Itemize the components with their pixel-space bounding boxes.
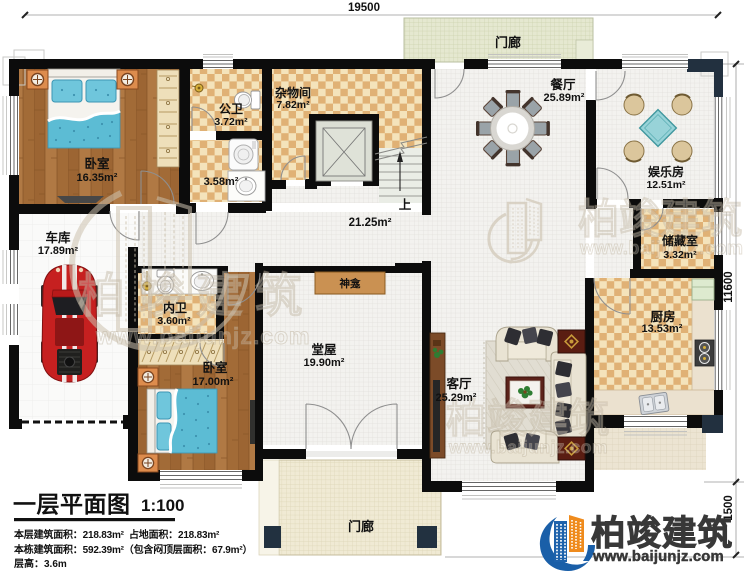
svg-text:本栋建筑面积：592.39m²（包含闷顶层面积：67.9m²: 本栋建筑面积：592.39m²（包含闷顶层面积：67.9m²） xyxy=(14,543,252,556)
svg-text:16.35m²: 16.35m² xyxy=(77,172,118,184)
svg-text:上: 上 xyxy=(399,197,412,212)
svg-text:13.53m²: 13.53m² xyxy=(642,323,683,335)
svg-text:19500: 19500 xyxy=(348,2,380,14)
svg-text:21.25m²: 21.25m² xyxy=(349,217,392,229)
svg-text:柏竣建筑: 柏竣建筑 xyxy=(578,196,742,242)
svg-text:客厅: 客厅 xyxy=(445,376,472,391)
svg-text:门廊: 门廊 xyxy=(495,35,521,50)
svg-text:17.89m²: 17.89m² xyxy=(38,245,79,257)
svg-text:www.baijunjz.com: www.baijunjz.com xyxy=(448,437,608,457)
svg-text:柏竣建筑: 柏竣建筑 xyxy=(78,269,314,322)
svg-text:3.32m²: 3.32m² xyxy=(663,249,697,261)
svg-text:7.82m²: 7.82m² xyxy=(276,99,310,111)
svg-text:内卫: 内卫 xyxy=(163,300,187,315)
svg-text:www.baijunjz.com: www.baijunjz.com xyxy=(592,549,724,565)
svg-text:娱乐房: 娱乐房 xyxy=(648,164,684,179)
svg-text:层高：3.6m: 层高：3.6m xyxy=(14,557,67,570)
svg-text:25.29m²: 25.29m² xyxy=(436,392,477,404)
svg-text:餐厅: 餐厅 xyxy=(549,77,576,92)
svg-text:卧室: 卧室 xyxy=(202,360,228,375)
svg-text:17.00m²: 17.00m² xyxy=(193,376,234,388)
svg-text:3.60m²: 3.60m² xyxy=(157,315,191,327)
svg-text:储藏室: 储藏室 xyxy=(662,233,698,248)
svg-text:车库: 车库 xyxy=(45,230,71,245)
svg-text:3.58m²: 3.58m² xyxy=(204,176,239,188)
svg-text:厨房: 厨房 xyxy=(650,309,675,324)
svg-text:www.baijunjz.com: www.baijunjz.com xyxy=(95,323,311,349)
svg-text:一层平面图: 一层平面图 xyxy=(13,491,131,517)
svg-text:11600: 11600 xyxy=(723,271,735,302)
svg-text:19.90m²: 19.90m² xyxy=(304,357,345,369)
svg-text:本层建筑面积：218.83m² 占地面积：218.83m²: 本层建筑面积：218.83m² 占地面积：218.83m² xyxy=(14,528,220,541)
svg-text:柏竣建筑: 柏竣建筑 xyxy=(591,514,733,553)
svg-text:神龛: 神龛 xyxy=(340,277,361,290)
svg-text:堂屋: 堂屋 xyxy=(311,342,337,357)
svg-text:门廊: 门廊 xyxy=(348,519,374,534)
svg-text:1:100: 1:100 xyxy=(141,496,184,515)
svg-text:公卫: 公卫 xyxy=(219,102,243,116)
svg-text:卧室: 卧室 xyxy=(84,156,110,171)
svg-text:杂物间: 杂物间 xyxy=(275,85,311,100)
svg-text:3.72m²: 3.72m² xyxy=(214,116,248,128)
svg-text:25.89m²: 25.89m² xyxy=(544,92,585,104)
svg-text:12.51m²: 12.51m² xyxy=(646,179,686,191)
